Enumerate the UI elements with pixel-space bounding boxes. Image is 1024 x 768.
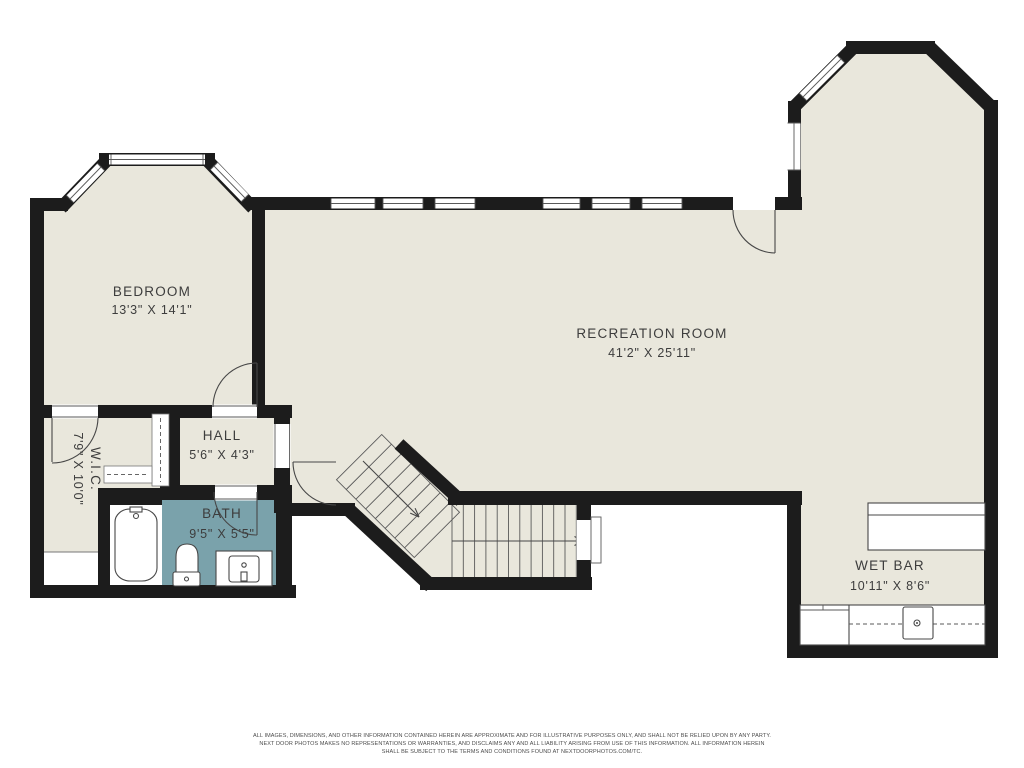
- wet-bar-cabinets: [800, 605, 985, 645]
- wic-dims: 7'9" X 10'0": [71, 432, 85, 505]
- disclaimer-line-3: SHALL BE SUBJECT TO THE TERMS AND CONDIT…: [382, 749, 643, 755]
- floor-plan-page: BEDROOM 13'3" X 14'1" RECREATION ROOM 41…: [0, 0, 1024, 768]
- wic-label: W.I.C.: [88, 447, 103, 491]
- disclaimer-line-1: ALL IMAGES, DIMENSIONS, AND OTHER INFORM…: [253, 733, 771, 739]
- toilet: [173, 544, 200, 586]
- wic-lower-nook: [44, 552, 98, 588]
- wet-bar-dims: 10'11" X 8'6": [850, 579, 930, 593]
- bath-label: BATH: [202, 506, 242, 521]
- wet-bar-counter: [868, 503, 985, 550]
- floor-plan-drawing: BEDROOM 13'3" X 14'1" RECREATION ROOM 41…: [0, 0, 1024, 768]
- bathtub: [115, 507, 157, 581]
- bedroom-dims: 13'3" X 14'1": [111, 303, 192, 317]
- bath-dims: 9'5" X 5'5": [189, 527, 255, 541]
- hall-dims: 5'6" X 4'3": [189, 448, 255, 462]
- hall-label: HALL: [203, 428, 242, 443]
- recreation-room-label: RECREATION ROOM: [576, 326, 727, 341]
- disclaimer-line-2: NEXT DOOR PHOTOS MAKES NO REPRESENTATION…: [259, 741, 764, 747]
- bathroom-vanity-sink: [216, 551, 272, 586]
- disclaimer: ALL IMAGES, DIMENSIONS, AND OTHER INFORM…: [253, 733, 771, 755]
- wet-bar-label: WET BAR: [855, 558, 925, 573]
- bedroom-label: BEDROOM: [113, 284, 191, 299]
- recreation-room-dims: 41'2" X 25'11": [608, 346, 696, 360]
